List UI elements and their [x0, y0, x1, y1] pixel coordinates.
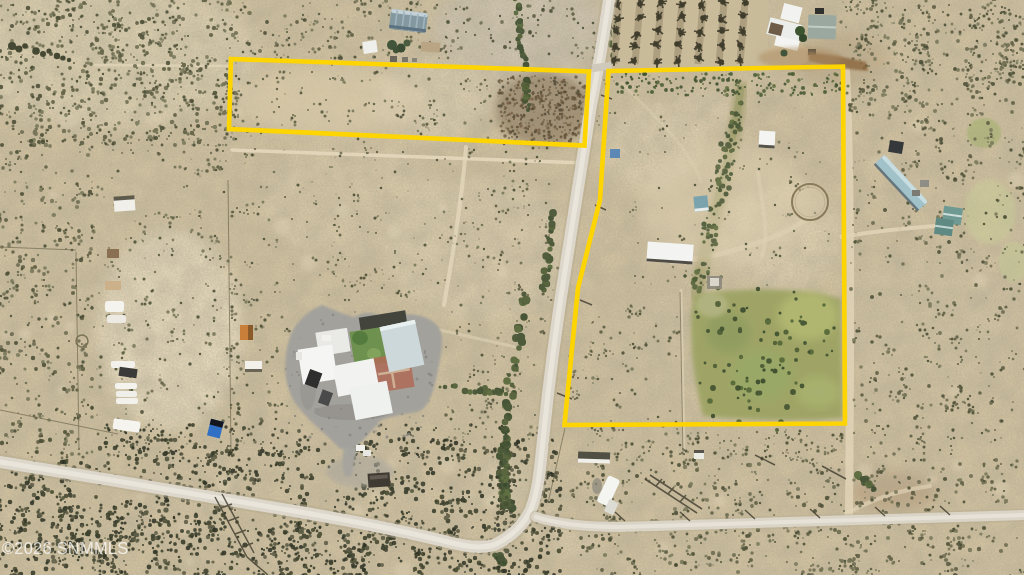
svg-text:©2026 SNMMLS: ©2026 SNMMLS	[2, 539, 128, 557]
